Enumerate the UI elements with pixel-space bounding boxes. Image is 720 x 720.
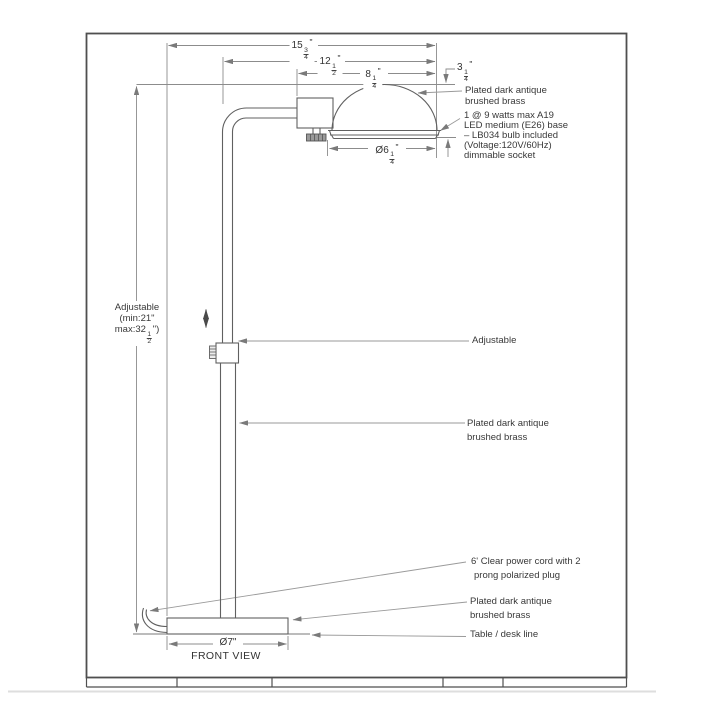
note-pole-finish: Plated dark antique brushed brass	[467, 417, 549, 444]
note-bulb-spec: 1 @ 9 watts max A19 LED medium (E26) bas…	[464, 111, 568, 161]
dimmer-knob	[307, 128, 327, 141]
lamp-shade-dome	[332, 85, 437, 131]
collar-knob	[210, 346, 217, 359]
lamp-shade-rim	[328, 131, 441, 139]
leader-lines	[150, 91, 469, 637]
lamp-technical-drawing	[0, 0, 720, 720]
view-title: FRONT VIEW	[191, 651, 261, 662]
lamp-lower-pole	[221, 363, 236, 618]
dim-total-depth: 1534"	[290, 37, 315, 62]
note-base-finish: Plated dark antique brushed brass	[470, 595, 552, 622]
dimension-lines	[137, 43, 457, 650]
lamp-base	[167, 618, 288, 634]
lamp-outline	[133, 85, 441, 635]
lamp-arm	[223, 108, 298, 343]
height-range-label: Adjustable (min:21" max:3212")	[115, 302, 159, 346]
note-power-cord: 6' Clear power cord with 2 prong polariz…	[471, 555, 581, 582]
head-bracket	[297, 98, 333, 128]
dim-shade-diameter: Ø614"	[373, 142, 400, 167]
dim-head-width: 814"	[363, 66, 382, 91]
power-cord	[142, 608, 167, 633]
dim-reach: 1212"	[318, 53, 343, 78]
note-table-desk-line: Table / desk line	[470, 630, 538, 641]
dim-shade-height: 314"	[455, 59, 474, 84]
note-shade-finish: Plated dark antique brushed brass	[465, 86, 547, 107]
adjustment-collar	[216, 343, 239, 363]
dim-base-diameter: Ø7"	[218, 637, 239, 648]
technical-drawing-page: 1534" 1212" 814" 314" Ø614" Ø7" Adjustab…	[0, 0, 720, 720]
note-adjustable: Adjustable	[472, 336, 516, 347]
title-block-strip	[87, 678, 627, 688]
